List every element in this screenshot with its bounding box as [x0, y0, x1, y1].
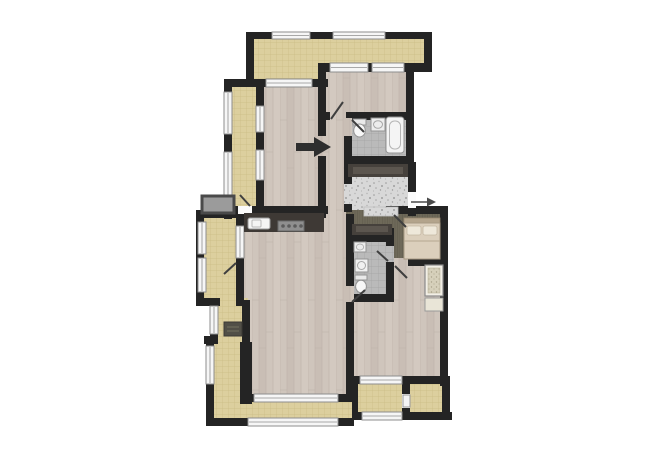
bed-headboard: [404, 218, 440, 223]
ac-unit: [224, 322, 242, 336]
hall-wardrobe-inner: [353, 167, 403, 174]
hall-wardrobe-2-inner: [356, 226, 388, 232]
utility-platform: [202, 196, 234, 213]
wall-segment: [344, 204, 352, 212]
door-opening: [344, 184, 352, 204]
floor-plan-drawing: [0, 0, 650, 459]
door-opening: [408, 192, 416, 208]
wall-segment: [242, 300, 250, 346]
bed-pillow: [423, 226, 437, 235]
wall-segment: [246, 32, 254, 86]
bed-pillow: [407, 226, 421, 235]
washing-machine: [355, 259, 368, 272]
door-opening: [346, 286, 354, 302]
burner: [281, 224, 285, 228]
entry-hall-floor: [348, 174, 412, 210]
wall-segment: [344, 156, 412, 164]
entrance-arrow-head: [427, 198, 436, 207]
door-opening: [344, 118, 352, 136]
burner: [293, 224, 297, 228]
bathtub: [386, 117, 404, 153]
sink-2: [354, 242, 366, 252]
balcony-divider-door: [403, 395, 410, 407]
entry-mat: [364, 207, 398, 216]
toilet-2-tank: [355, 275, 367, 280]
closet-unit-shelves: [428, 268, 440, 293]
wall-segment: [256, 84, 264, 212]
living-room-floor: [238, 208, 352, 400]
floor-plan: [0, 0, 650, 459]
burner: [299, 224, 303, 228]
closet-unit-2: [425, 298, 443, 311]
door-opening: [238, 206, 252, 214]
burner: [287, 224, 291, 228]
wall-segment: [318, 84, 326, 136]
wall-segment: [408, 162, 416, 192]
